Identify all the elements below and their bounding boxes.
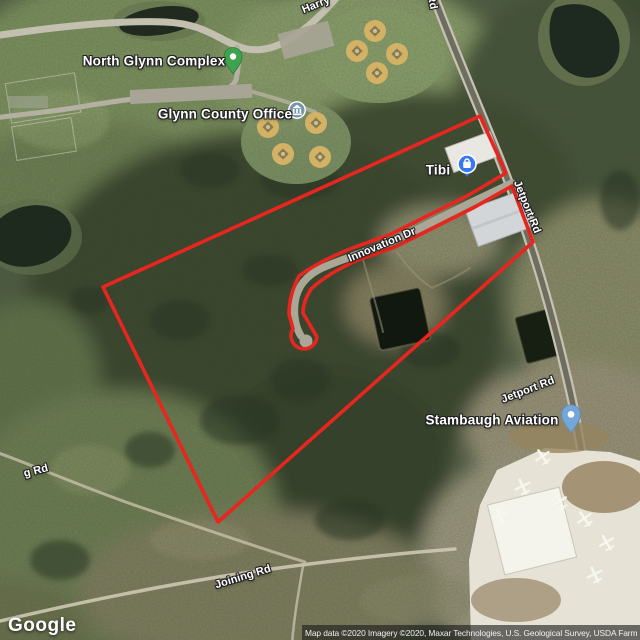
poi-label-north-glynn-complex[interactable]: North Glynn Complex — [83, 54, 226, 69]
satellite-imagery — [0, 0, 640, 640]
poi-label-glynn-county-office[interactable]: Glynn County Office — [158, 107, 292, 122]
map-viewport[interactable]: North Glynn Complex Glynn County Office … — [0, 0, 640, 640]
attribution-text: Map data ©2020 Imagery ©2020, Maxar Tech… — [305, 628, 637, 638]
poi-label-tibi[interactable]: Tibi — [426, 163, 451, 178]
attribution-bar: Map data ©2020 Imagery ©2020, Maxar Tech… — [302, 625, 640, 640]
google-logo[interactable]: Google — [8, 615, 76, 637]
poi-label-stambaugh-aviation[interactable]: Stambaugh Aviation — [425, 413, 558, 428]
